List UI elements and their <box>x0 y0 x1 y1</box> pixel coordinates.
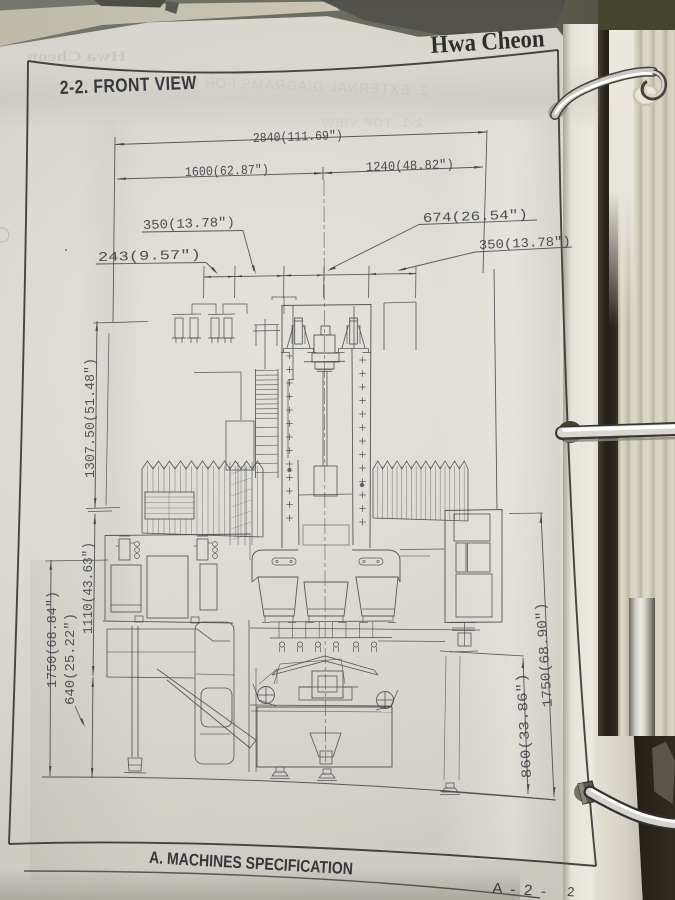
svg-text:350(13.78″): 350(13.78″) <box>143 215 235 233</box>
svg-text:2. EXTERNAL DIAGRAMS FOR MACH: 2. EXTERNAL DIAGRAMS FOR MACH <box>153 72 428 98</box>
svg-text:1307.50(51.48″): 1307.50(51.48″) <box>83 358 99 478</box>
svg-text:2840(111.69″): 2840(111.69″) <box>253 128 343 146</box>
svg-text:350(13.78″): 350(13.78″) <box>479 234 572 253</box>
svg-text:2: 2 <box>567 884 575 899</box>
svg-text:640(25.22″): 640(25.22″) <box>63 613 79 705</box>
svg-text:674(26.54″): 674(26.54″) <box>423 207 528 226</box>
svg-text:1600(62.87″): 1600(62.87″) <box>185 162 269 180</box>
svg-text:A - 2 -: A - 2 - <box>492 880 549 900</box>
svg-text:A. MACHINES SPECIFICATION: A. MACHINES SPECIFICATION <box>149 848 354 878</box>
svg-text:860(33.86″): 860(33.86″) <box>515 673 536 779</box>
svg-text:1240(48.82″): 1240(48.82″) <box>366 157 454 175</box>
svg-text:1110(43.63″): 1110(43.63″) <box>81 542 97 634</box>
svg-text:Hwa Cheon: Hwa Cheon <box>26 49 126 65</box>
svg-text:1750(68.90″): 1750(68.90″) <box>534 602 557 708</box>
svg-text:1750(68.84″): 1750(68.84″) <box>45 591 61 688</box>
